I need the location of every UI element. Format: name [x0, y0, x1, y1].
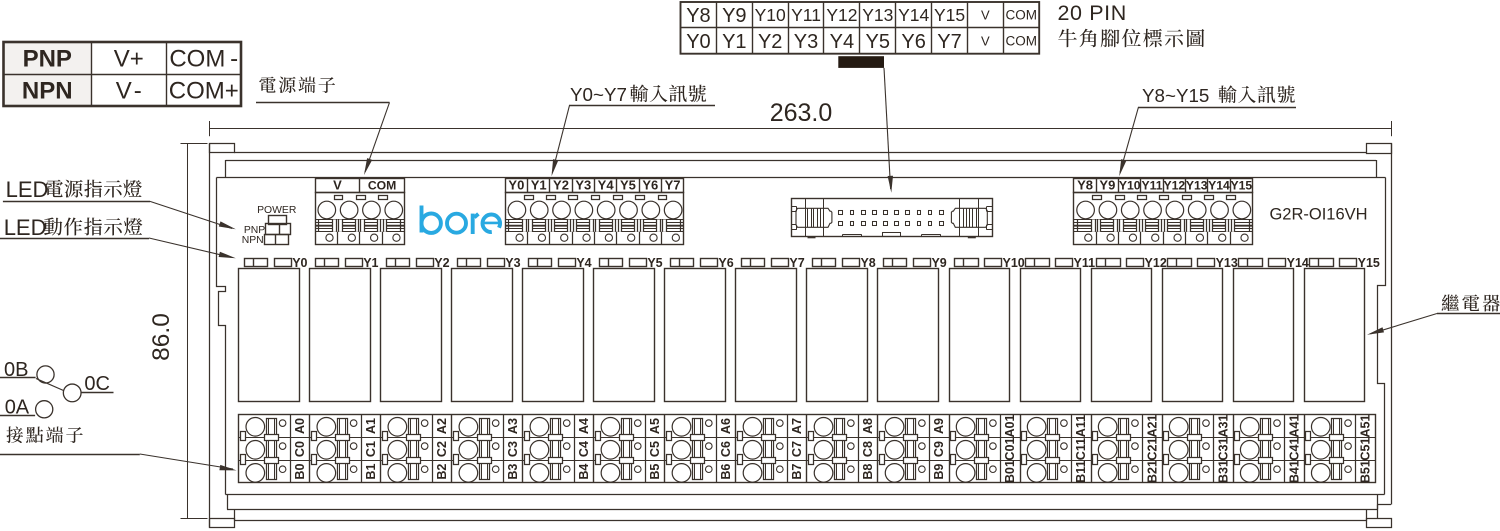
svg-text:Y11: Y11 [1142, 178, 1163, 192]
svg-text:B51: B51 [1358, 460, 1372, 483]
svg-text:Y9: Y9 [1099, 177, 1115, 192]
svg-text:Y12: Y12 [1145, 256, 1167, 270]
svg-text:C51: C51 [1358, 437, 1372, 460]
svg-text:263.0: 263.0 [770, 99, 833, 127]
svg-text:Y8: Y8 [1077, 177, 1093, 192]
svg-text:B1: B1 [364, 464, 378, 480]
svg-text:Y1: Y1 [531, 177, 547, 192]
svg-text:C31: C31 [1216, 437, 1230, 460]
svg-text:Y15: Y15 [934, 5, 965, 25]
svg-text:POWER: POWER [257, 205, 297, 216]
svg-text:Y7: Y7 [789, 256, 804, 270]
svg-text:Y15: Y15 [1358, 256, 1380, 270]
svg-text:A4: A4 [577, 418, 591, 434]
svg-text:NPN: NPN [242, 235, 264, 246]
svg-text:A2: A2 [435, 418, 449, 434]
svg-text:Y0: Y0 [292, 256, 307, 270]
svg-text:B11: B11 [1074, 460, 1088, 482]
svg-text:V+: V+ [114, 46, 144, 73]
svg-text:B7: B7 [790, 464, 804, 480]
svg-text:Y12: Y12 [1163, 178, 1185, 192]
svg-text:Y6: Y6 [901, 31, 925, 53]
svg-text:Y10: Y10 [755, 5, 786, 25]
svg-text:A9: A9 [932, 418, 946, 434]
svg-text:Y3: Y3 [505, 256, 520, 270]
svg-text:Y3: Y3 [794, 31, 818, 53]
svg-text:B6: B6 [719, 464, 733, 480]
svg-text:C7: C7 [790, 441, 804, 457]
svg-text:Y14: Y14 [1208, 178, 1230, 192]
svg-text:COM+: COM+ [169, 78, 239, 105]
svg-text:C3: C3 [506, 441, 520, 457]
svg-text:COM: COM [1006, 34, 1038, 49]
svg-text:B21: B21 [1145, 460, 1159, 483]
svg-text:Y2: Y2 [553, 177, 569, 192]
svg-text:Y4: Y4 [830, 31, 854, 53]
svg-text:B01: B01 [1003, 460, 1017, 483]
svg-text:C8: C8 [861, 441, 875, 457]
svg-text:Y6: Y6 [642, 177, 658, 192]
svg-text:B2: B2 [435, 464, 449, 480]
svg-text:V: V [981, 7, 990, 22]
svg-text:A8: A8 [861, 418, 875, 434]
svg-text:G2R-OI16VH: G2R-OI16VH [1269, 205, 1367, 223]
svg-text:Y11: Y11 [791, 5, 821, 25]
svg-text:A41: A41 [1287, 414, 1301, 437]
svg-text:V -: V - [116, 78, 142, 105]
svg-text:B41: B41 [1287, 460, 1301, 483]
svg-text:Y8~Y15: Y8~Y15 [1142, 85, 1209, 106]
svg-text:A21: A21 [1145, 414, 1159, 437]
svg-text:NPN: NPN [22, 78, 73, 105]
svg-text:Y4: Y4 [576, 256, 591, 270]
svg-text:Y8: Y8 [860, 256, 875, 270]
svg-text:Y13: Y13 [1186, 178, 1208, 192]
svg-text:C4: C4 [577, 441, 591, 457]
svg-text:COM: COM [368, 178, 396, 192]
svg-text:A31: A31 [1216, 414, 1230, 437]
svg-text:Y1: Y1 [722, 31, 746, 53]
svg-text:Y5: Y5 [620, 177, 636, 192]
svg-text:COM: COM [1006, 8, 1038, 23]
svg-text:Y5: Y5 [647, 256, 662, 270]
svg-text:C21: C21 [1145, 437, 1159, 460]
svg-text:V: V [333, 177, 342, 192]
svg-text:Y9: Y9 [722, 5, 746, 27]
svg-text:C01: C01 [1003, 437, 1017, 460]
svg-text:Y0~Y7: Y0~Y7 [570, 84, 627, 105]
svg-text:Y4: Y4 [598, 177, 615, 192]
svg-text:86.0: 86.0 [148, 313, 175, 361]
svg-text:Y0: Y0 [508, 177, 524, 192]
svg-text:Y13: Y13 [1216, 256, 1238, 270]
svg-text:A6: A6 [719, 418, 733, 434]
svg-text:A11: A11 [1074, 415, 1088, 437]
svg-text:Y1: Y1 [363, 256, 378, 270]
svg-text:Y13: Y13 [862, 5, 893, 25]
svg-text:A51: A51 [1358, 414, 1372, 437]
svg-text:B9: B9 [932, 464, 946, 480]
svg-text:B5: B5 [648, 464, 662, 480]
svg-text:0C: 0C [84, 373, 110, 395]
svg-text:C0: C0 [293, 441, 307, 457]
svg-text:C2: C2 [435, 441, 449, 457]
svg-text:Y10: Y10 [1119, 178, 1141, 192]
svg-text:Y9: Y9 [931, 256, 946, 270]
svg-text:COM -: COM - [169, 46, 238, 73]
svg-text:C5: C5 [648, 441, 662, 457]
svg-text:B3: B3 [506, 464, 520, 480]
svg-text:C6: C6 [719, 441, 733, 457]
svg-text:C9: C9 [932, 441, 946, 457]
svg-text:Y7: Y7 [937, 31, 961, 53]
svg-text:Y3: Y3 [575, 177, 591, 192]
svg-text:V: V [981, 33, 990, 48]
svg-text:A7: A7 [790, 418, 804, 434]
svg-text:Y15: Y15 [1230, 178, 1252, 192]
svg-text:B0: B0 [293, 464, 307, 480]
svg-text:Y7: Y7 [665, 177, 681, 192]
svg-text:B8: B8 [861, 464, 875, 480]
svg-text:Y10: Y10 [1003, 256, 1025, 270]
svg-text:A5: A5 [648, 418, 662, 434]
svg-text:A0: A0 [293, 418, 307, 434]
svg-text:Y6: Y6 [718, 256, 733, 270]
svg-text:LED: LED [4, 215, 47, 240]
svg-text:C41: C41 [1287, 437, 1301, 460]
svg-text:Y2: Y2 [758, 31, 782, 53]
svg-text:A1: A1 [364, 418, 378, 434]
svg-text:LED: LED [6, 177, 49, 202]
svg-text:A3: A3 [506, 418, 520, 434]
svg-text:Y14: Y14 [898, 5, 929, 25]
svg-text:Y2: Y2 [434, 256, 449, 270]
svg-text:Y8: Y8 [686, 5, 710, 27]
svg-text:PNP: PNP [23, 46, 72, 73]
svg-text:C11: C11 [1074, 438, 1088, 460]
svg-text:B4: B4 [577, 464, 591, 480]
svg-text:B31: B31 [1216, 460, 1230, 483]
svg-text:20 PIN: 20 PIN [1058, 1, 1127, 25]
svg-text:Y11: Y11 [1074, 256, 1096, 270]
svg-text:Y14: Y14 [1287, 256, 1309, 270]
svg-text:A01: A01 [1003, 414, 1017, 437]
svg-text:Y5: Y5 [866, 31, 890, 53]
svg-text:C1: C1 [364, 441, 378, 457]
svg-text:Y0: Y0 [686, 31, 710, 53]
svg-text:Y12: Y12 [826, 5, 857, 25]
